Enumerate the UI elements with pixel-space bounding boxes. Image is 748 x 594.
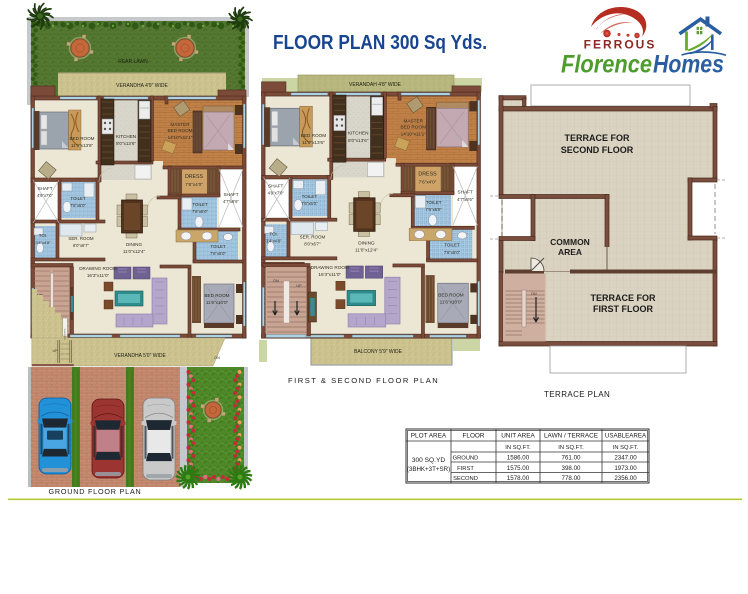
- svg-text:ELECTRIC: ELECTRIC: [64, 328, 66, 339]
- svg-text:UP: UP: [53, 349, 59, 353]
- svg-text:1575.00: 1575.00: [507, 465, 530, 472]
- svg-text:AREA: AREA: [558, 247, 582, 257]
- svg-text:398.00: 398.00: [562, 465, 581, 472]
- svg-text:2356.00: 2356.00: [614, 475, 637, 482]
- svg-text:FIRST FLOOR: FIRST FLOOR: [593, 304, 653, 314]
- svg-text:UP: UP: [296, 284, 302, 288]
- svg-text:FIRST & SECOND FLOOR PLAN: FIRST & SECOND FLOOR PLAN: [288, 376, 439, 385]
- svg-text:IN SQ.FT.: IN SQ.FT.: [505, 445, 531, 451]
- svg-text:FLOOR PLAN 300 Sq Yds.: FLOOR PLAN 300 Sq Yds.: [273, 32, 487, 54]
- svg-text:VERANDHA 5'0" WIDE: VERANDHA 5'0" WIDE: [114, 353, 166, 359]
- svg-text:IN SQ.FT.: IN SQ.FT.: [613, 445, 639, 451]
- svg-text:300 SQ.YD: 300 SQ.YD: [412, 457, 446, 464]
- svg-text:(3BHK+3T+SR): (3BHK+3T+SR): [407, 466, 450, 473]
- svg-text:TERRACE FOR: TERRACE FOR: [591, 293, 657, 303]
- svg-text:1973.00: 1973.00: [614, 465, 637, 472]
- svg-text:COMMON: COMMON: [550, 237, 590, 247]
- svg-text:761.00: 761.00: [562, 455, 581, 462]
- svg-text:TERRACE FOR: TERRACE FOR: [565, 133, 631, 143]
- svg-text:SECOND FLOOR: SECOND FLOOR: [561, 145, 634, 155]
- svg-text:FERROUS: FERROUS: [584, 38, 657, 52]
- svg-text:LAWN / TERRACE: LAWN / TERRACE: [544, 433, 598, 440]
- svg-text:VERANDHA 4'9" WIDE: VERANDHA 4'9" WIDE: [116, 83, 168, 89]
- svg-text:ON: ON: [214, 356, 220, 360]
- svg-text:VERANDAH 4'8" WIDE: VERANDAH 4'8" WIDE: [349, 82, 402, 88]
- svg-text:UNIT AREA: UNIT AREA: [501, 433, 535, 440]
- svg-text:REAR LAWN: REAR LAWN: [118, 59, 148, 65]
- svg-text:SECOND: SECOND: [453, 476, 478, 482]
- svg-text:TERRACE PLAN: TERRACE PLAN: [544, 390, 610, 399]
- svg-text:DN: DN: [273, 279, 279, 283]
- svg-text:1578.00: 1578.00: [507, 475, 530, 482]
- svg-text:Florence: Florence: [561, 51, 652, 79]
- svg-text:IN SQ.FT.: IN SQ.FT.: [558, 445, 584, 451]
- svg-text:778.00: 778.00: [562, 475, 581, 482]
- svg-text:GROUND FLOOR PLAN: GROUND FLOOR PLAN: [48, 487, 141, 496]
- svg-text:Homes: Homes: [653, 51, 724, 79]
- svg-text:BALCONY 5'9" WIDE: BALCONY 5'9" WIDE: [354, 349, 403, 355]
- svg-text:PLOT AREA: PLOT AREA: [411, 433, 447, 440]
- svg-text:DN: DN: [531, 292, 537, 296]
- svg-text:FIRST: FIRST: [457, 466, 474, 472]
- svg-text:GROUND: GROUND: [453, 456, 479, 462]
- svg-text:USABLEAREA: USABLEAREA: [605, 433, 647, 440]
- svg-text:FLOOR: FLOOR: [462, 433, 484, 440]
- svg-text:1586.00: 1586.00: [507, 455, 530, 462]
- svg-text:2347.00: 2347.00: [614, 455, 637, 462]
